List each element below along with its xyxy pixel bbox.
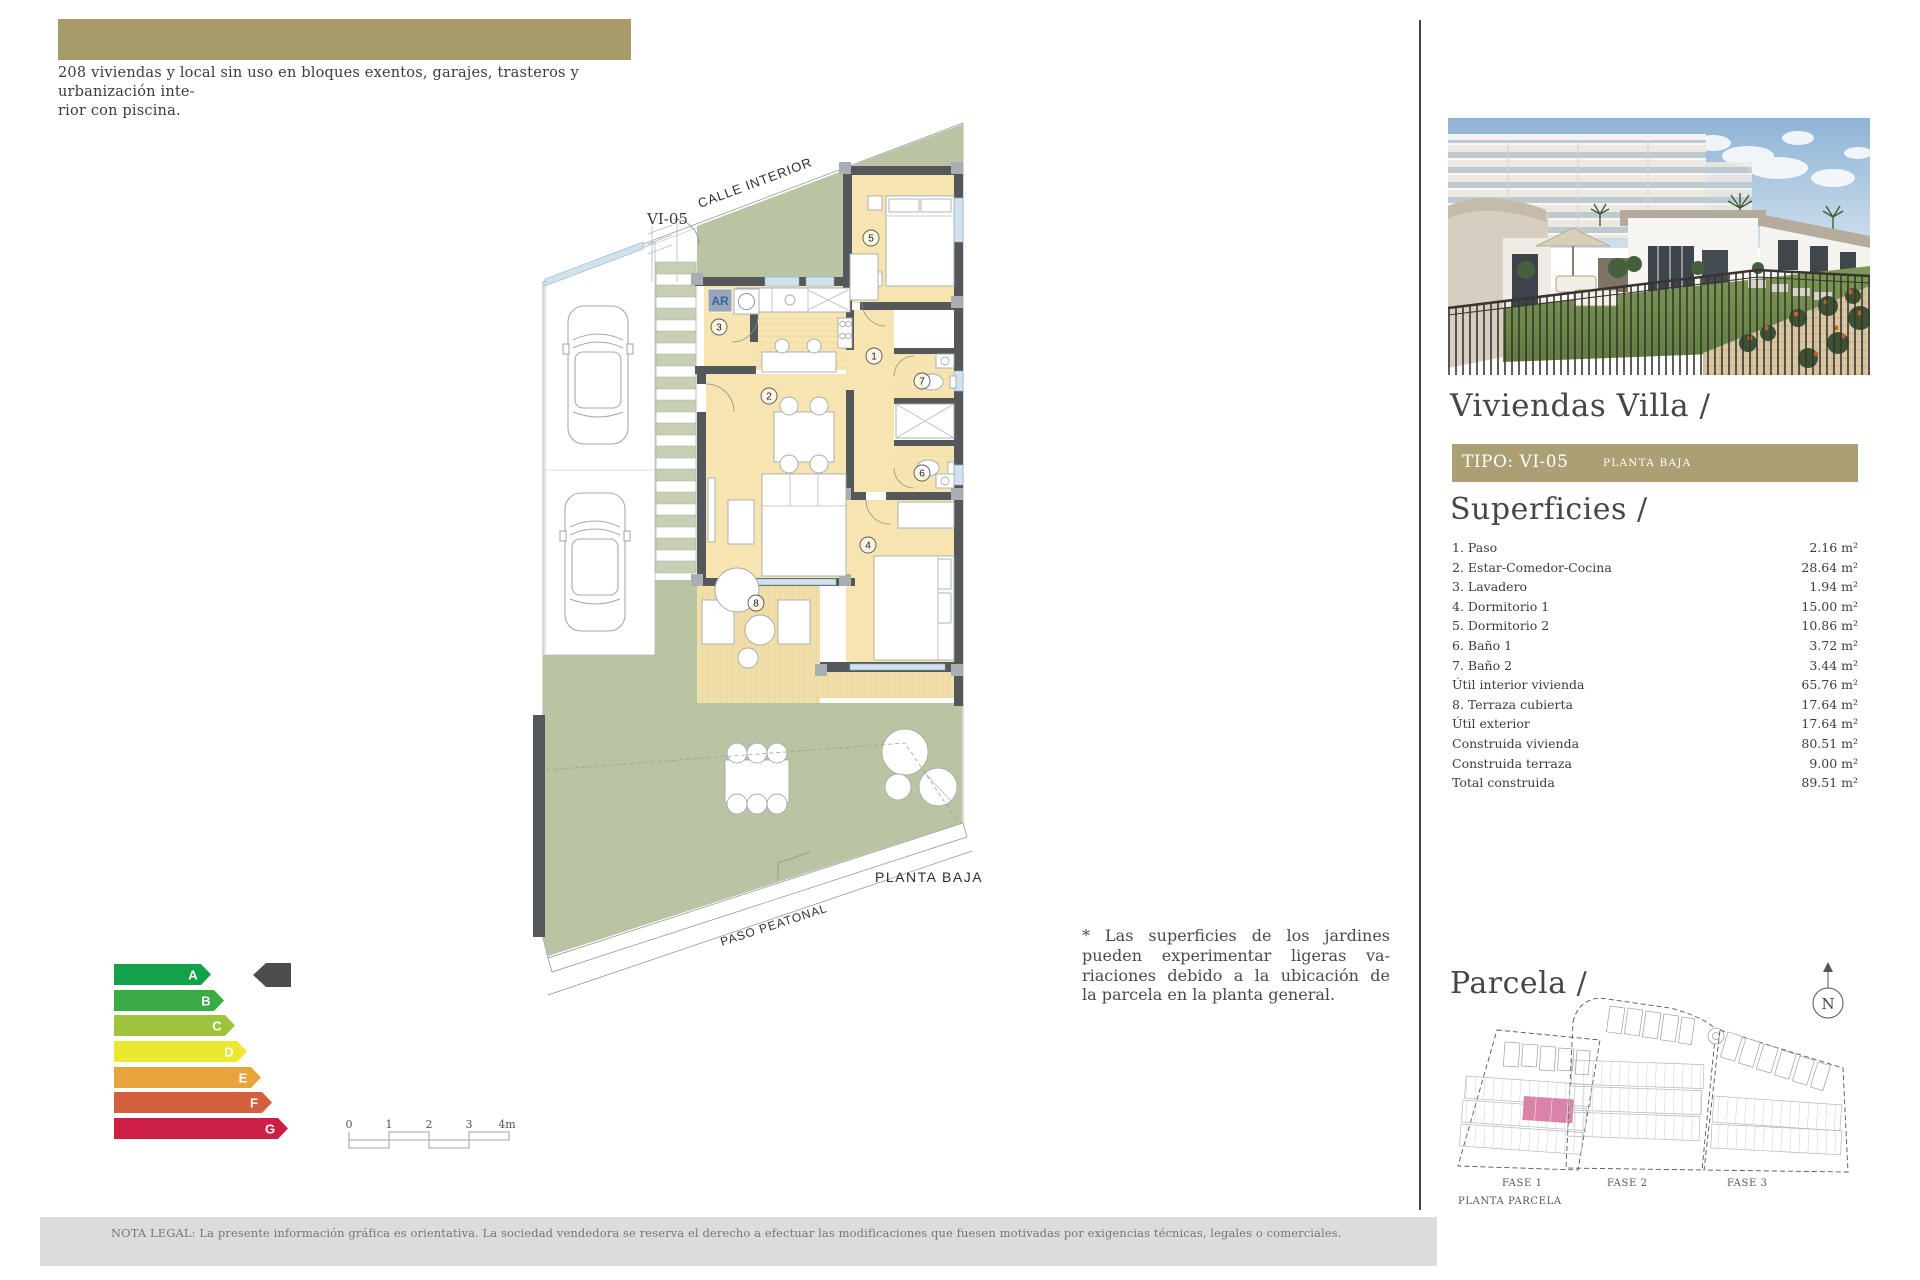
car-icon [560,493,630,631]
superficies-row: 3. Lavadero1.94 m² [1452,577,1858,597]
scale-tick: 4m [498,1118,516,1131]
scale-tick: 0 [346,1118,353,1131]
tipo-label: TIPO: VI-05 [1462,452,1568,472]
tipo-floor-label: PLANTA BAJA [1603,457,1691,469]
note-line: riaciones debido a la ubicación de [1082,966,1390,986]
superficies-value: 65.76 m² [1801,675,1858,695]
svg-text:5: 5 [868,234,874,245]
superficies-row: Construida vivienda80.51 m² [1452,734,1858,754]
superficies-value: 3.72 m² [1809,636,1858,656]
svg-text:8: 8 [753,599,759,610]
superficies-value: 2.16 m² [1809,538,1858,558]
fase2-block [1566,998,1724,1170]
superficies-label: Construida terraza [1452,754,1572,774]
superficies-label: 7. Baño 2 [1452,656,1512,676]
svg-text:1: 1 [871,352,877,363]
superficies-row: 2. Estar-Comedor-Cocina28.64 m² [1452,558,1858,578]
superficies-label: 4. Dormitorio 1 [1452,597,1549,617]
superficies-row: Útil exterior17.64 m² [1452,714,1858,734]
superficies-row: 4. Dormitorio 115.00 m² [1452,597,1858,617]
plan-type-label: VI-05 [646,210,688,228]
superficies-label: Útil exterior [1452,714,1530,734]
fase3-block [1704,1030,1848,1172]
site-plan-svg: N [1450,958,1892,1213]
panel-title: Viviendas Villa / [1450,388,1710,424]
project-caption: 208 viviendas y local sin uso en bloques… [58,64,638,121]
fase2-label: FASE 2 [1607,1178,1648,1189]
superficies-title: Superficies / [1450,492,1648,527]
superficies-value: 3.44 m² [1809,656,1858,676]
project-caption-line1: 208 viviendas y local sin uso en bloques… [58,64,638,102]
superficies-label: Construida vivienda [1452,734,1579,754]
legal-text: NOTA LEGAL: La presente información gráf… [111,1226,1341,1240]
gardens-note: * Las superficies de los jardines pueden… [1082,926,1390,1005]
planta-parcela-label: PLANTA PARCELA [1458,1196,1562,1207]
stairs [656,262,696,573]
svg-text:6: 6 [919,469,925,480]
pedestrian-path-label: PASO PEATONAL [719,901,830,949]
superficies-value: 10.86 m² [1801,616,1858,636]
superficies-value: 80.51 m² [1801,734,1858,754]
superficies-label: 6. Baño 1 [1452,636,1512,656]
floor-plan-svg: VI-05 CALLE INTERIOR PLANTA BAJA PASO PE… [525,115,1030,1015]
energy-rating-chart: A B C D E F G [105,955,305,1155]
energy-label-b: B [201,994,210,1009]
superficies-value: 89.51 m² [1801,773,1858,793]
energy-label-e: E [239,1071,248,1086]
energy-label-g: G [265,1122,275,1137]
svg-text:4: 4 [865,541,871,552]
brochure-page: 208 viviendas y local sin uso en bloques… [0,0,1920,1280]
superficies-value: 17.64 m² [1801,695,1858,715]
villa-render-photo [1448,118,1870,375]
superficies-label: Útil interior vivienda [1452,675,1584,695]
svg-text:7: 7 [919,377,925,388]
laundry-label: AR [711,294,729,308]
superficies-value: 1.94 m² [1809,577,1858,597]
svg-text:2: 2 [766,392,772,403]
energy-label-d: D [224,1045,233,1060]
superficies-value: 28.64 m² [1801,558,1858,578]
scale-tick: 1 [386,1118,393,1131]
panel-divider [1419,20,1421,1210]
svg-text:3: 3 [716,323,722,334]
floor-level-label: PLANTA BAJA [875,869,983,885]
superficies-row: Construida terraza9.00 m² [1452,754,1858,774]
car-icon [563,306,633,444]
fase1-label: FASE 1 [1502,1178,1543,1189]
note-line: * Las superficies de los jardines [1082,926,1390,946]
legal-bar: NOTA LEGAL: La presente información gráf… [40,1217,1437,1266]
compass-icon: N [1813,962,1843,1018]
superficies-label: 5. Dormitorio 2 [1452,616,1549,636]
superficies-label: 3. Lavadero [1452,577,1527,597]
scale-tick: 3 [466,1118,473,1131]
superficies-label: Total construida [1452,773,1555,793]
superficies-row: 7. Baño 23.44 m² [1452,656,1858,676]
tipo-bar: TIPO: VI-05 PLANTA BAJA [1452,444,1858,482]
scale-tick: 2 [426,1118,433,1131]
note-line: la parcela en la planta general. [1082,985,1390,1005]
energy-bars [114,964,288,1139]
superficies-row: 8. Terraza cubierta17.64 m² [1452,695,1858,715]
fase3-label: FASE 3 [1727,1178,1768,1189]
superficies-value: 15.00 m² [1801,597,1858,617]
superficies-label: 1. Paso [1452,538,1497,558]
graphic-scale: 0 1 2 3 4m [340,1118,520,1158]
superficies-label: 2. Estar-Comedor-Cocina [1452,558,1612,578]
energy-label-c: C [212,1019,222,1034]
energy-label-a: A [188,968,198,983]
superficies-label: 8. Terraza cubierta [1452,695,1573,715]
superficies-value: 9.00 m² [1809,754,1858,774]
superficies-row: Total construida89.51 m² [1452,773,1858,793]
superficies-value: 17.64 m² [1801,714,1858,734]
header-accent-bar [58,19,631,60]
superficies-row: 6. Baño 13.72 m² [1452,636,1858,656]
superficies-list: 1. Paso2.16 m² 2. Estar-Comedor-Cocina28… [1452,538,1858,793]
note-line: pueden experimentar ligeras va- [1082,946,1390,966]
superficies-row: Útil interior vivienda65.76 m² [1452,675,1858,695]
compass-north-label: N [1821,995,1834,1013]
energy-label-f: F [250,1096,258,1111]
superficies-row: 1. Paso2.16 m² [1452,538,1858,558]
superficies-row: 5. Dormitorio 210.86 m² [1452,616,1858,636]
energy-cursor-icon [253,963,291,987]
